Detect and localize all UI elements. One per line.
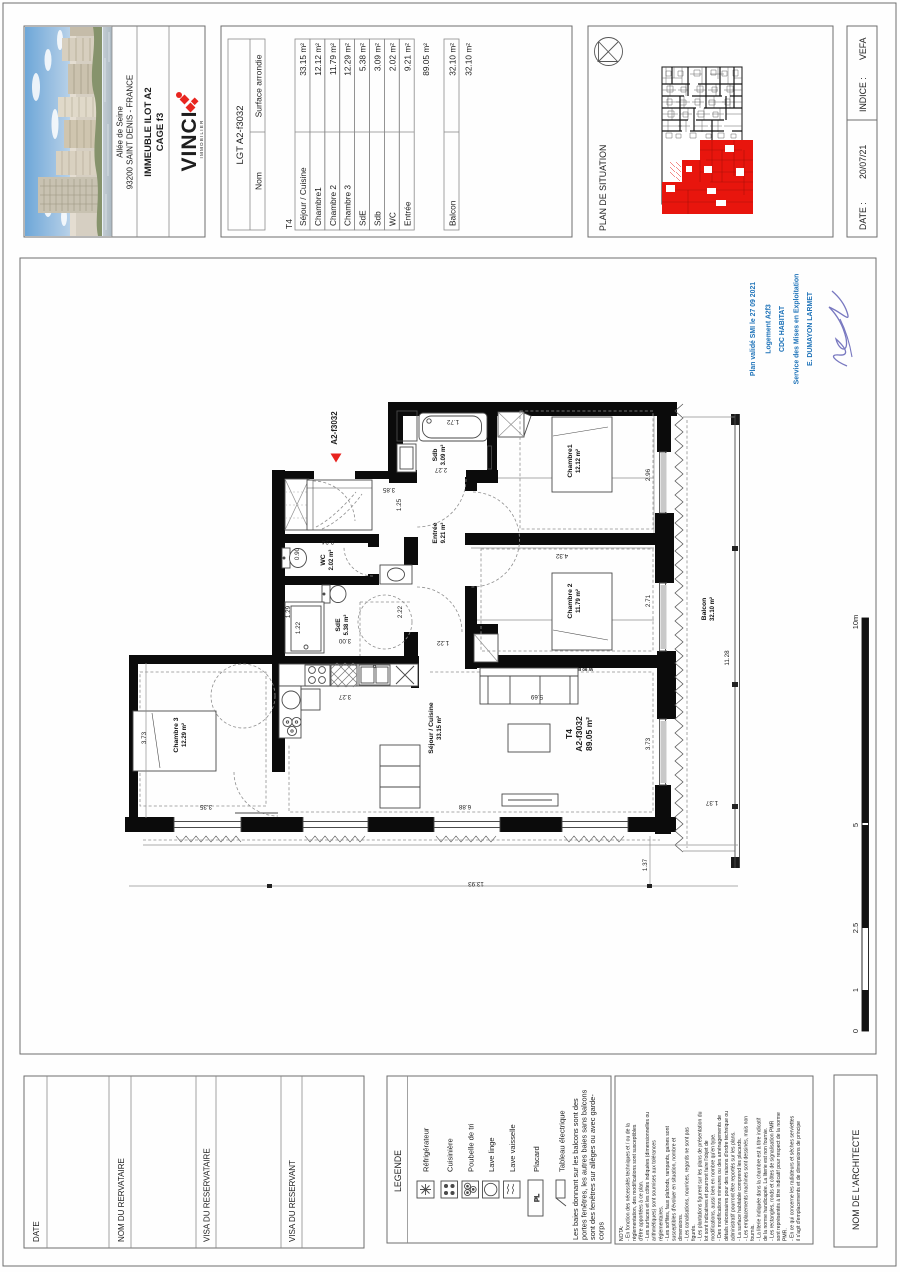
svg-text:T4: T4 [284, 219, 294, 229]
svg-text:VISA DU RESERVATAIRE: VISA DU RESERVATAIRE [203, 1148, 212, 1242]
svg-text:12.29 m²: 12.29 m² [181, 723, 188, 747]
svg-text:2.22: 2.22 [397, 605, 404, 618]
svg-text:- En fonction des nécessités t: - En fonction des nécessités techniques … [626, 1123, 632, 1241]
svg-text:1.25: 1.25 [396, 498, 403, 511]
svg-text:lot sont indicatives et pourro: lot sont indicatives et pourront faire l… [704, 1140, 710, 1241]
svg-text:3.27: 3.27 [338, 693, 351, 700]
svg-text:Chambre 2: Chambre 2 [567, 583, 574, 618]
svg-text:1.72: 1.72 [446, 418, 459, 425]
svg-text:11.79 m²: 11.79 m² [575, 589, 582, 613]
svg-text:PMR.: PMR. [783, 1228, 789, 1241]
svg-text:1.37: 1.37 [705, 799, 718, 806]
svg-text:3.35: 3.35 [199, 803, 212, 810]
svg-text:20/07/21: 20/07/21 [858, 145, 868, 179]
svg-text:1.22: 1.22 [295, 621, 302, 634]
svg-text:T4: T4 [564, 729, 574, 739]
svg-text:Lave vaisselle: Lave vaisselle [508, 1124, 517, 1172]
svg-text:Chambre1: Chambre1 [313, 187, 323, 226]
svg-text:WC: WC [320, 554, 327, 565]
svg-text:Chambre 3: Chambre 3 [343, 185, 353, 226]
svg-text:- Les emplacements machines so: - Les emplacements machines sont dessiné… [743, 1116, 749, 1241]
svg-text:Chambre 3: Chambre 3 [173, 717, 180, 752]
svg-text:sont représentés à titre indic: sont représentés à titre indicatif pour … [776, 1112, 782, 1241]
svg-text:Balcon: Balcon [701, 598, 708, 621]
svg-text:susceptibles d'évoluer en situ: susceptibles d'évoluer en situation, nom… [671, 1137, 677, 1241]
svg-text:A2-f3032: A2-f3032 [330, 411, 339, 445]
svg-text:33.15 m²: 33.15 m² [436, 716, 443, 740]
svg-text:Séjour / Cuisine: Séjour / Cuisine [428, 702, 435, 754]
svg-text:12.12 m²: 12.12 m² [575, 449, 582, 473]
svg-text:Entrée: Entrée [432, 522, 439, 543]
svg-text:32.10 m²: 32.10 m² [448, 43, 458, 76]
svg-text:Chambre1: Chambre1 [567, 444, 574, 477]
svg-text:NOM DE L'ARCHITECTE: NOM DE L'ARCHITECTE [851, 1129, 861, 1230]
svg-text:2.02 m²: 2.02 m² [387, 43, 397, 71]
svg-text:93200 SAINT DENIS - FRANCE: 93200 SAINT DENIS - FRANCE [126, 75, 135, 190]
svg-text:Plan validé SMI le 27 09 2021: Plan validé SMI le 27 09 2021 [750, 282, 757, 376]
svg-text:- Les canalisations, nourrices: - Les canalisations, nourrices, regards … [685, 1127, 691, 1241]
svg-text:réglementation, des modificati: réglementation, des modifications sont s… [632, 1124, 638, 1241]
svg-text:13.93: 13.93 [468, 880, 484, 887]
svg-text:- Les plantations figurent sur: - Les plantations figurent sur les plans… [698, 1111, 704, 1241]
svg-text:DATE :: DATE : [858, 202, 868, 230]
svg-text:2.5: 2.5 [851, 923, 860, 933]
svg-text:Réfrigérateur: Réfrigérateur [422, 1127, 431, 1172]
svg-text:Allée de Seine: Allée de Seine [116, 106, 125, 158]
svg-text:1: 1 [851, 988, 860, 992]
svg-text:Séjour / Cuisine: Séjour / Cuisine [298, 167, 308, 226]
svg-text:Lave linge: Lave linge [487, 1137, 496, 1172]
svg-text:1.22: 1.22 [436, 639, 449, 646]
svg-text:Tableau électrique: Tableau électrique [558, 1110, 567, 1172]
svg-text:2.71: 2.71 [645, 594, 652, 607]
svg-text:modifications, aussi bien en n: modifications, aussi bien en nombre qu'e… [711, 1134, 717, 1241]
svg-text:WC: WC [387, 212, 397, 226]
svg-text:E. DUMAYON LARMET: E. DUMAYON LARMET [807, 291, 814, 366]
svg-text:Sdb: Sdb [432, 449, 439, 462]
svg-text:10m: 10m [851, 615, 860, 630]
svg-text:5.69: 5.69 [530, 693, 543, 700]
svg-text:33.15 m²: 33.15 m² [298, 43, 308, 76]
svg-text:1.37: 1.37 [642, 858, 649, 871]
svg-text:Cuisinière: Cuisinière [446, 1138, 455, 1172]
svg-text:2.27: 2.27 [434, 466, 447, 473]
svg-text:3.73: 3.73 [645, 737, 652, 750]
svg-text:VEFA: VEFA [858, 37, 868, 60]
svg-text:il s'agit d'emplacements et de: il s'agit d'emplacements et de dimension… [796, 1121, 802, 1241]
svg-text:2.02 m²: 2.02 m² [328, 550, 335, 571]
svg-text:sont des fenêtres sur allèges: sont des fenêtres sur allèges ou avec ga… [588, 1094, 597, 1240]
svg-text:Poubelle de tri: Poubelle de tri [467, 1123, 476, 1172]
svg-text:Sdb: Sdb [373, 211, 383, 226]
svg-text:Surface arrondie: Surface arrondie [254, 54, 264, 117]
svg-text:W 90 E: W 90 E [578, 667, 593, 672]
svg-text:9.21 m²: 9.21 m² [402, 43, 412, 71]
svg-text:Chambre 2: Chambre 2 [328, 185, 338, 226]
svg-text:de la norme handicapée. La lit: de la norme handicapée. La literie est n… [763, 1128, 769, 1241]
svg-text:- Les surfaces et les côtes in: - Les surfaces et les côtes indiquées (d… [645, 1112, 651, 1241]
svg-text:12.12 m²: 12.12 m² [313, 43, 323, 76]
svg-text:LGT A2-f3032: LGT A2-f3032 [235, 106, 246, 165]
svg-text:Entrée: Entrée [402, 201, 412, 226]
svg-text:5: 5 [851, 823, 860, 827]
svg-text:0: 0 [851, 1029, 860, 1033]
svg-text:32.10 m²: 32.10 m² [464, 43, 474, 76]
svg-text:NOTA:: NOTA: [619, 1226, 625, 1241]
svg-text:11.28: 11.28 [724, 650, 731, 666]
svg-text:Nom: Nom [254, 172, 264, 190]
svg-text:6.88: 6.88 [458, 803, 471, 810]
svg-text:Logement A2f3: Logement A2f3 [766, 304, 773, 354]
svg-text:- Des modifications mineures o: - Des modifications mineures ou des amén… [717, 1115, 723, 1241]
svg-text:3.00: 3.00 [338, 637, 351, 644]
svg-text:3.73: 3.73 [141, 731, 148, 744]
svg-text:Service des Mises en Exploitat: Service des Mises en Exploitation [794, 274, 801, 385]
svg-text:Balcon: Balcon [448, 200, 458, 226]
svg-text:0.90: 0.90 [294, 547, 301, 560]
svg-text:VINCI: VINCI [178, 110, 201, 171]
svg-text:PLAN DE SITUATION: PLAN DE SITUATION [598, 145, 608, 231]
svg-text:4.32: 4.32 [555, 552, 568, 559]
svg-text:2.96: 2.96 [645, 468, 652, 481]
svg-text:A2-f3032: A2-f3032 [574, 716, 584, 752]
svg-text:- En ce qui concerne les radia: - En ce qui concerne les radiateurs et s… [789, 1115, 795, 1241]
svg-text:5.38 m²: 5.38 m² [343, 615, 350, 636]
svg-text:administratif pourront être re: administratif pourront être reportés sur… [730, 1131, 736, 1241]
svg-text:2.24: 2.24 [321, 538, 334, 545]
svg-text:NOM DU RERVATAIRE: NOM DU RERVATAIRE [117, 1158, 126, 1242]
svg-text:- Les soffites, faux plafonds,: - Les soffites, faux plafonds, rampants,… [665, 1126, 671, 1241]
svg-text:3.85: 3.85 [382, 486, 395, 493]
svg-text:dimensions.: dimensions. [678, 1214, 684, 1241]
svg-text:CDC HABITAT: CDC HABITAT [779, 305, 786, 352]
svg-text:9.21 m²: 9.21 m² [440, 523, 447, 544]
svg-text:11.79 m²: 11.79 m² [328, 43, 338, 75]
svg-text:- La literie indiquée dans la: - La literie indiquée dans la chambre es… [757, 1117, 763, 1241]
svg-text:89.05 m²: 89.05 m² [421, 43, 431, 76]
svg-text:INDICE :: INDICE : [858, 77, 868, 112]
svg-text:arithmétiques) sont soumises a: arithmétiques) sont soumises aux toléran… [652, 1140, 658, 1241]
svg-text:fournis.: fournis. [750, 1224, 756, 1241]
svg-text:1.29: 1.29 [285, 605, 292, 618]
svg-text:- La surface habitable compren: - La surface habitable comprend les plac… [737, 1138, 743, 1241]
svg-text:détails nécessaires pour des r: détails nécessaires pour des raisons d'o… [724, 1111, 730, 1241]
svg-text:LEGENDE: LEGENDE [393, 1150, 403, 1192]
svg-text:5.38 m²: 5.38 m² [358, 43, 368, 71]
svg-text:PL: PL [534, 1194, 541, 1202]
svg-text:corps: corps [597, 1222, 606, 1240]
svg-text:SdE: SdE [335, 618, 342, 632]
svg-text:d'être apportées à ce plan.: d'être apportées à ce plan. [639, 1181, 645, 1241]
svg-text:figurés.: figurés. [691, 1224, 697, 1241]
svg-text:DATE: DATE [32, 1221, 41, 1242]
svg-text:Placard: Placard [532, 1146, 541, 1172]
svg-text:12.29 m²: 12.29 m² [343, 43, 353, 76]
svg-text:IMMOBILIER: IMMOBILIER [199, 119, 204, 158]
svg-text:3.09 m²: 3.09 m² [440, 445, 447, 466]
svg-text:3.09 m²: 3.09 m² [373, 43, 383, 71]
svg-text:CAGE f3: CAGE f3 [155, 113, 166, 152]
svg-text:89.05 m²: 89.05 m² [584, 717, 594, 751]
svg-text:VISA DU RESERVANT: VISA DU RESERVANT [288, 1160, 297, 1242]
svg-text:réglementaires.: réglementaires. [658, 1206, 664, 1241]
svg-text:- Les rectangles, ronds et côt: - Les rectangles, ronds et côtes de sign… [770, 1120, 776, 1241]
svg-text:IMMEUBLE ILOT A2: IMMEUBLE ILOT A2 [143, 87, 154, 176]
svg-text:32.10 m²: 32.10 m² [709, 597, 716, 621]
svg-text:SdE: SdE [358, 210, 368, 226]
